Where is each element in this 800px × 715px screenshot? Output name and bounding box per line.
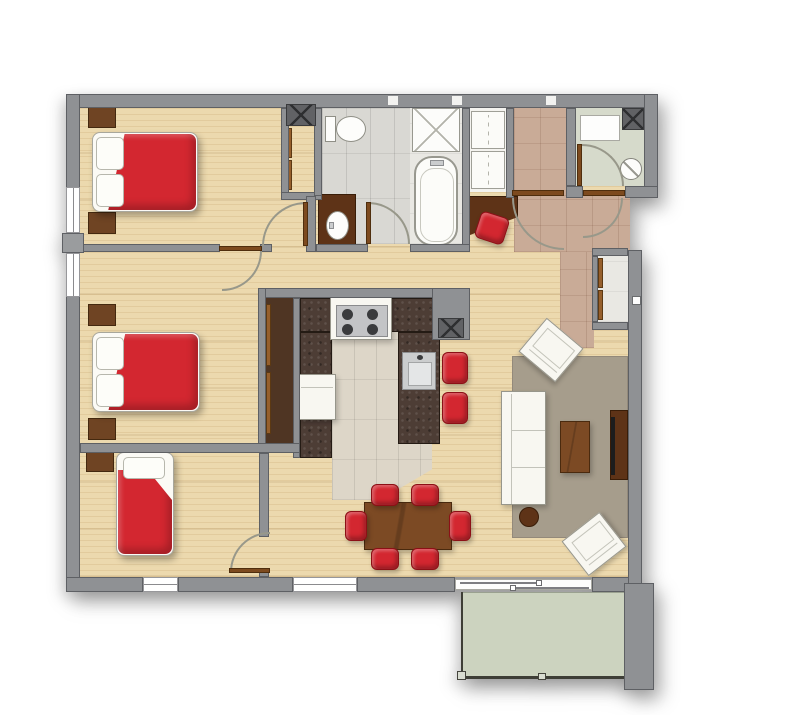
dining-chair-left — [345, 511, 367, 541]
wall-bath-right — [462, 108, 470, 252]
entry-closet-door-strip-1 — [598, 258, 603, 288]
floor-plan — [0, 0, 800, 715]
bed3-pillow — [123, 457, 165, 479]
wall-bed3-right — [259, 453, 269, 537]
bathtub-inner — [420, 168, 454, 242]
patio-rail-left — [461, 592, 463, 678]
patio-column — [624, 583, 654, 690]
top-wall-tick-2 — [452, 96, 462, 105]
wall-top — [66, 94, 658, 108]
patio-post-2 — [538, 673, 546, 680]
shower — [412, 108, 460, 152]
sofa — [501, 391, 546, 505]
wall-bath-south-1 — [316, 244, 368, 252]
wall-entry-closet-bottom — [592, 322, 628, 330]
top-wall-tick-1 — [388, 96, 398, 105]
burner-2 — [367, 309, 378, 320]
slider-handle-1 — [536, 580, 542, 586]
stove — [330, 294, 392, 340]
tv-console — [610, 410, 628, 480]
utility-cabinet — [622, 108, 644, 130]
fridge-divider — [301, 387, 333, 388]
laundry-unit-lower — [471, 151, 505, 189]
bed2-pillow-1 — [96, 337, 124, 370]
door-hall-leaf — [512, 190, 564, 196]
sink-basin — [408, 362, 432, 386]
wall-utility-bottom-a — [566, 186, 583, 198]
dining-chair-top-2 — [411, 484, 439, 506]
wall-left — [66, 94, 80, 592]
patio-floor — [462, 592, 626, 678]
bathtub-faucet — [430, 160, 444, 166]
wall-bottom-3 — [357, 577, 455, 592]
slider-handle-2 — [510, 585, 516, 591]
entry-closet-door-strip-2 — [598, 290, 603, 320]
bed-1 — [92, 132, 198, 212]
wall-bottom-2 — [178, 577, 293, 592]
sofa-cushion-line-2 — [512, 467, 545, 468]
sofa-backrest — [511, 394, 512, 504]
wall-bed23-divider — [80, 443, 300, 453]
burner-3 — [342, 324, 353, 335]
burner-1 — [342, 309, 353, 320]
kitchen-corner-cabinet — [438, 318, 464, 338]
bed1-pillow-1 — [96, 137, 124, 170]
bed-3 — [116, 452, 174, 556]
door-bedroom3-leaf — [229, 568, 270, 573]
utility-counter — [580, 115, 620, 141]
bed-2 — [92, 332, 200, 412]
nightstand-bed3 — [86, 450, 114, 472]
bar-stool-2 — [442, 392, 468, 424]
wall-utility-left — [566, 108, 576, 186]
toilet-tank — [325, 116, 336, 142]
door-bedroom2-leaf — [219, 246, 262, 251]
door-bedroom1-leaf — [303, 202, 308, 246]
slider-panel-2 — [514, 587, 589, 589]
window-bottom-bedroom3 — [143, 577, 178, 592]
bed1-pillow-2 — [96, 174, 124, 207]
dining-chair-bottom-2 — [411, 548, 439, 570]
dining-chair-bottom-1 — [371, 548, 399, 570]
laundry-unit-upper — [471, 111, 505, 149]
toilet-bowl — [336, 116, 366, 142]
burner-4 — [367, 324, 378, 335]
closet-bed2-door-strip-1 — [266, 304, 271, 366]
slider-panel-1 — [460, 582, 538, 584]
wall-entry-closet-left — [592, 256, 598, 322]
vanity-faucet — [329, 222, 334, 229]
patio-sliding-door — [455, 579, 592, 590]
wall-bed2-right — [258, 288, 266, 445]
nightstand-bed2-top — [88, 304, 116, 326]
wall-right-upper — [644, 94, 658, 198]
nightstand-bed1-bottom — [88, 212, 116, 234]
nightstand-bed2-bottom — [88, 418, 116, 440]
dining-chair-right — [449, 511, 471, 541]
closet-bed2-door-strip-2 — [266, 372, 271, 434]
tv-screen — [611, 417, 615, 475]
window-left-bedroom1 — [66, 187, 80, 233]
nightstand-bed1-top — [88, 106, 116, 128]
wall-bottom-1 — [66, 577, 143, 592]
door-front-leaf — [583, 190, 625, 196]
top-wall-tick-3 — [546, 96, 556, 105]
wall-kitchen-left — [293, 298, 300, 458]
bed2-pillow-2 — [96, 374, 124, 407]
right-wall-panel-mark — [632, 296, 641, 305]
bar-stool-1 — [442, 352, 468, 384]
left-wall-pier — [62, 233, 84, 253]
wall-bed1-south — [80, 244, 220, 252]
wall-utility-bottom-b — [625, 186, 658, 198]
door-bathroom-leaf — [366, 202, 371, 244]
side-ottoman — [519, 507, 539, 527]
window-bottom-dining — [293, 577, 357, 592]
wardrobe-bed1 — [286, 104, 316, 126]
dining-table — [364, 502, 452, 550]
bathtub — [414, 156, 458, 246]
water-heater — [620, 158, 642, 180]
fridge — [298, 374, 336, 420]
wall-kitchen-top — [258, 288, 435, 298]
hall-tile-upper — [514, 108, 566, 196]
window-left-bedroom2 — [66, 253, 80, 297]
floor-plan-page — [0, 0, 800, 715]
coffee-table — [560, 421, 590, 473]
kitchen-sink — [402, 352, 436, 390]
door-utility-leaf — [577, 144, 582, 186]
dining-chair-top-1 — [371, 484, 399, 506]
patio-post-1 — [457, 671, 466, 680]
wall-bath-south-2 — [410, 244, 470, 252]
wall-entry-closet-top — [592, 248, 628, 256]
sink-faucet — [417, 355, 423, 360]
sofa-cushion-line-1 — [512, 430, 545, 431]
wall-laundry-right — [506, 108, 514, 198]
